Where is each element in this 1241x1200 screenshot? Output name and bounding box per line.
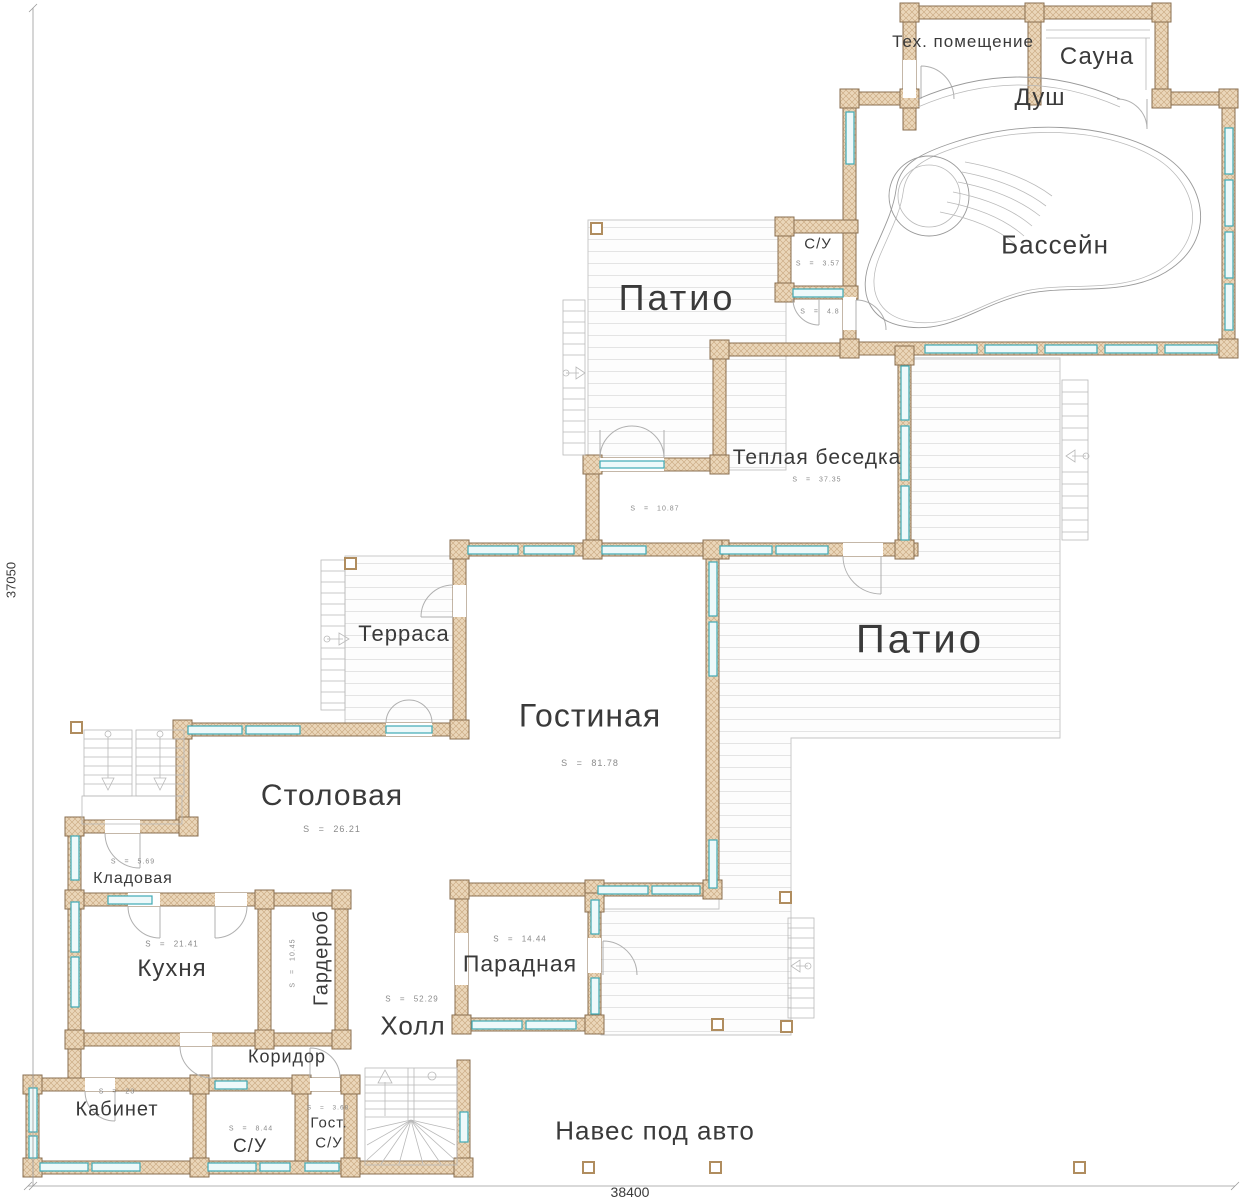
room-label-office: Кабинет <box>75 1099 158 1122</box>
room-area-wc-top: S = 3.57 <box>796 261 840 268</box>
room-label-dining: Столовая <box>261 779 403 813</box>
room-label-corridor: Коридор <box>248 1047 326 1068</box>
patio-top-stairs <box>563 300 585 455</box>
room-label-kitchen: Кухня <box>137 955 206 983</box>
room-label-carport: Навес под авто <box>555 1116 755 1147</box>
room-area-wc-bottom: S = 8.44 <box>229 1126 273 1133</box>
room-label-hall: Холл <box>380 1011 445 1042</box>
room-label-gazebo: Теплая беседка <box>733 446 902 470</box>
room-label-tech: Тех. помещение <box>892 32 1034 52</box>
room-area-kitchen: S = 21.41 <box>145 940 198 949</box>
room-label-pantry: Кладовая <box>93 870 173 888</box>
room-area-office: S = 23 <box>99 1089 135 1096</box>
room-label-living: Гостиная <box>519 698 661 735</box>
room-area-pantry: S = 5.69 <box>111 859 155 866</box>
floor-plan-drawing <box>0 0 1241 1200</box>
pool-shape <box>865 127 1200 327</box>
room-area-gazebo: S = 37.35 <box>792 477 841 484</box>
room-label-terrace: Терраса <box>358 621 449 647</box>
terrace-stairs <box>321 560 349 710</box>
room-label-guest-wc-line1: Гост. <box>310 1115 347 1132</box>
room-label-patio-main: Патио <box>856 618 984 663</box>
floor-plan: Тех. помещение Сауна Душ Бассейн С/У S =… <box>0 0 1241 1200</box>
room-area-front: S = 14.44 <box>493 935 546 944</box>
room-area-pool-entry: S = 4.8 <box>800 309 839 316</box>
room-label-wc-top: С/У <box>804 236 832 253</box>
room-label-guest-wc-line2: С/У <box>315 1135 343 1152</box>
room-label-shower: Душ <box>1014 84 1065 112</box>
dimension-bottom: 38400 <box>611 1184 650 1200</box>
room-label-pool: Бассейн <box>1001 230 1109 261</box>
room-label-wc-bottom: С/У <box>233 1136 267 1158</box>
room-area-guest-wc: S = 3.68 <box>307 1105 349 1112</box>
room-label-front: Парадная <box>463 951 577 978</box>
room-area-wardrobe: S = 10.45 <box>290 938 297 987</box>
room-area-gazebo-entry: S = 10.87 <box>630 506 679 513</box>
room-area-living: S = 81.78 <box>561 758 619 768</box>
room-label-sauna: Сауна <box>1060 43 1134 71</box>
dimension-left: 37050 <box>4 562 19 598</box>
main-stairs <box>365 1068 457 1165</box>
room-label-patio-top: Патио <box>619 277 736 319</box>
room-label-wardrobe: Гардероб <box>311 910 334 1006</box>
room-area-hall: S = 52.29 <box>385 995 438 1004</box>
patio-main-stairs <box>1062 380 1089 540</box>
porch-stairs <box>82 730 184 824</box>
front-deck-stairs <box>788 918 814 1018</box>
room-area-dining: S = 26.21 <box>303 824 361 834</box>
